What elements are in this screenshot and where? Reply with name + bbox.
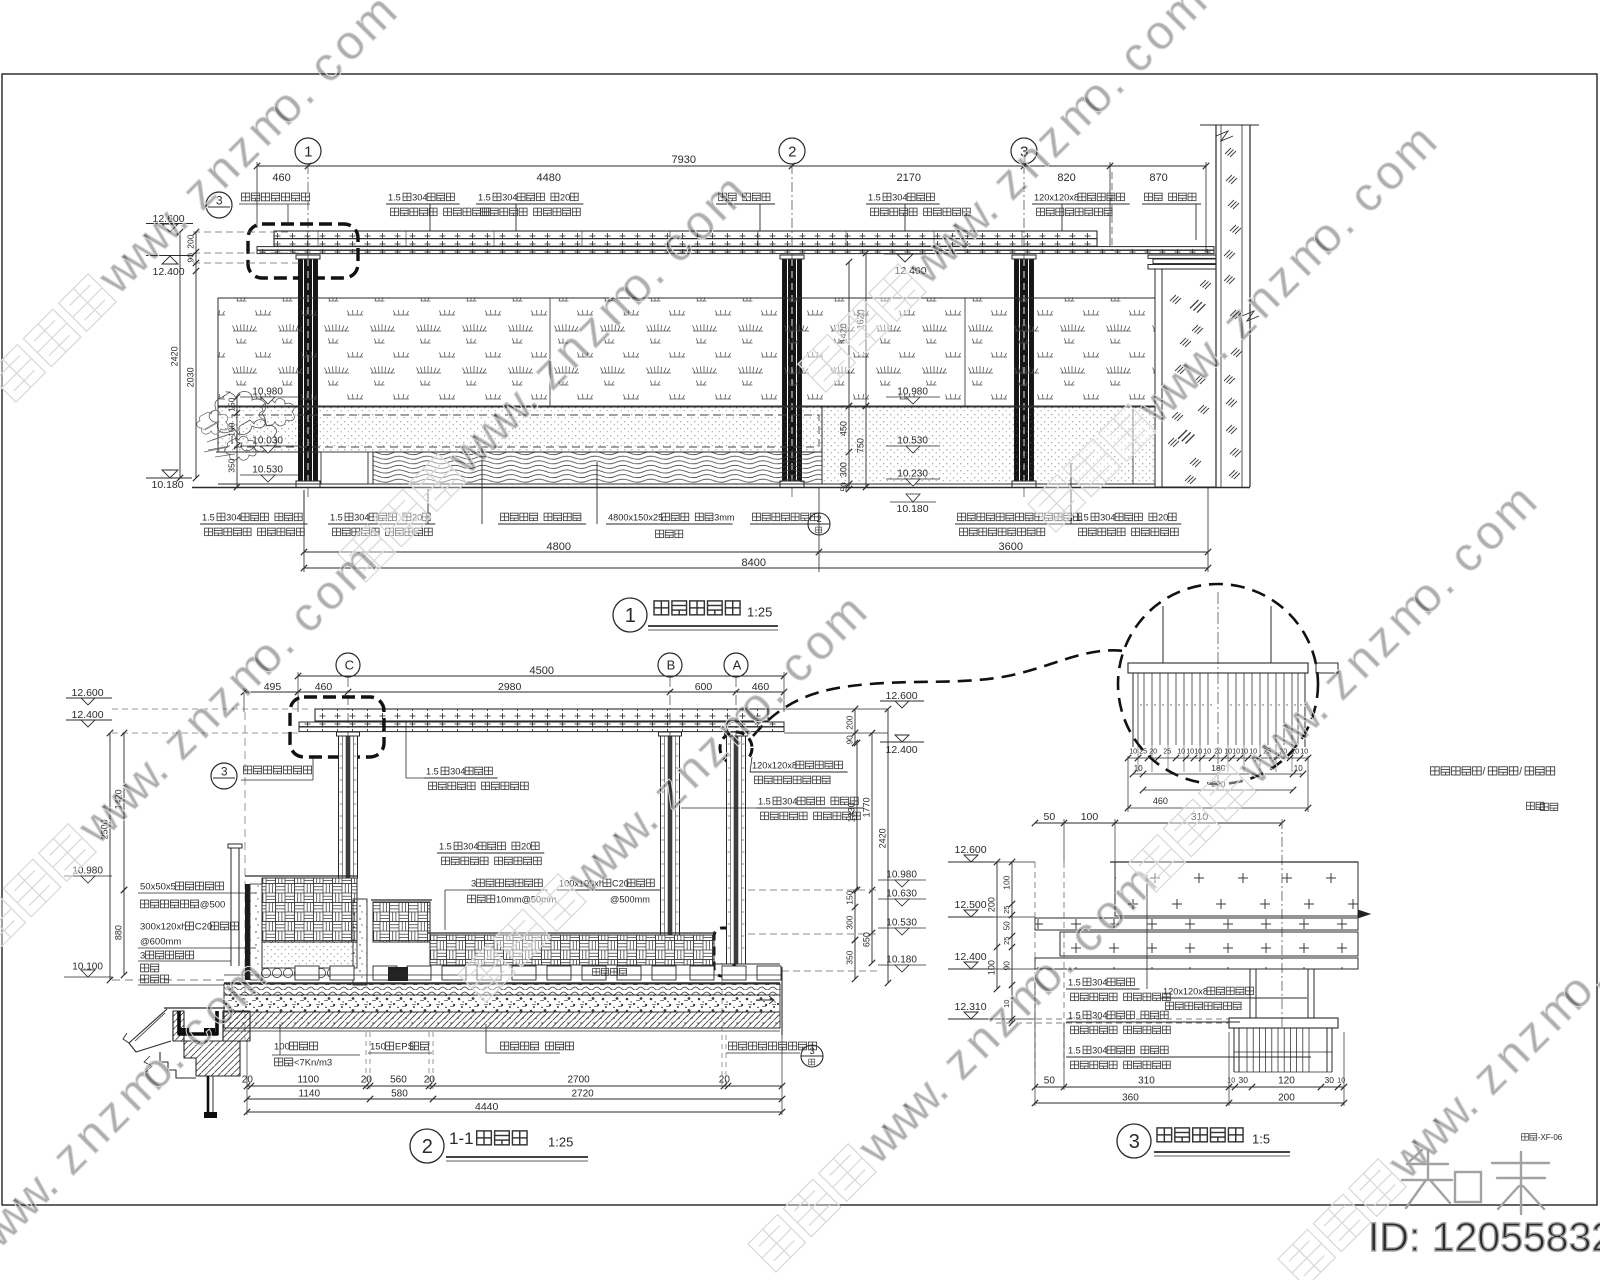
- svg-text:1: 1: [625, 605, 636, 627]
- svg-text:3: 3: [471, 878, 476, 888]
- svg-text:1.5: 1.5: [1068, 1045, 1081, 1055]
- svg-text:2030: 2030: [186, 367, 196, 387]
- svg-text:90: 90: [845, 735, 854, 744]
- svg-text:304: 304: [1092, 977, 1107, 987]
- svg-text:10: 10: [1294, 764, 1303, 773]
- svg-text:100: 100: [987, 960, 997, 975]
- svg-text:1.5: 1.5: [1076, 512, 1089, 522]
- svg-text:2980: 2980: [498, 681, 522, 693]
- svg-text:870: 870: [1149, 172, 1167, 184]
- svg-text:10: 10: [1227, 1078, 1235, 1085]
- svg-text:2720: 2720: [572, 1089, 595, 1100]
- svg-text:880: 880: [114, 925, 124, 940]
- svg-text:8400: 8400: [742, 557, 766, 569]
- svg-text:10.230: 10.230: [897, 469, 928, 480]
- svg-text:10.630: 10.630: [886, 889, 917, 900]
- svg-text:12.400: 12.400: [886, 744, 918, 756]
- svg-text:304: 304: [1092, 1010, 1107, 1020]
- svg-text:820: 820: [1057, 172, 1075, 184]
- svg-text:@500: @500: [200, 899, 226, 910]
- svg-text:20: 20: [521, 841, 531, 851]
- svg-text:90: 90: [186, 253, 196, 263]
- svg-text:10.980: 10.980: [886, 870, 917, 881]
- svg-text:1.5: 1.5: [1068, 1010, 1081, 1020]
- svg-text:10: 10: [1134, 764, 1143, 773]
- svg-text:120x120x8: 120x120x8: [1163, 986, 1208, 996]
- svg-text:12.500: 12.500: [955, 899, 987, 911]
- svg-text:304: 304: [1092, 1045, 1107, 1055]
- svg-text:3: 3: [221, 764, 228, 778]
- svg-text:3: 3: [140, 950, 145, 961]
- svg-text:10: 10: [1203, 747, 1211, 756]
- svg-text:A: A: [733, 658, 742, 673]
- svg-text:25: 25: [1002, 937, 1011, 945]
- svg-text:12.400: 12.400: [955, 951, 987, 963]
- svg-text:50: 50: [839, 482, 848, 491]
- svg-text:4800: 4800: [547, 541, 571, 553]
- svg-text:10.180: 10.180: [152, 479, 184, 491]
- svg-text:460: 460: [272, 172, 290, 184]
- svg-text:30: 30: [1325, 1075, 1335, 1085]
- svg-text:150: 150: [845, 890, 855, 904]
- svg-text:3: 3: [810, 1046, 815, 1056]
- svg-text:10: 10: [1177, 747, 1185, 756]
- svg-text:560: 560: [390, 1075, 407, 1086]
- svg-text:304: 304: [892, 192, 907, 202]
- svg-text:20: 20: [1158, 512, 1168, 522]
- svg-text:30: 30: [1239, 1075, 1249, 1085]
- svg-text:4440: 4440: [475, 1101, 499, 1113]
- svg-text:4800x150x25: 4800x150x25: [608, 512, 663, 522]
- svg-text:580: 580: [391, 1089, 408, 1100]
- svg-text:20: 20: [1149, 747, 1157, 756]
- svg-text:304: 304: [226, 512, 241, 522]
- svg-text:100: 100: [1002, 875, 1012, 889]
- svg-text:1.5: 1.5: [202, 512, 215, 522]
- svg-text:4500: 4500: [530, 665, 554, 677]
- svg-text:1.5: 1.5: [330, 512, 343, 522]
- svg-text:50x50x5: 50x50x5: [140, 881, 176, 892]
- svg-text:EPS: EPS: [395, 1041, 414, 1052]
- svg-text:12.600: 12.600: [955, 844, 987, 856]
- svg-text:1-1: 1-1: [449, 1129, 474, 1148]
- svg-text:304: 304: [354, 512, 369, 522]
- svg-text:50: 50: [1044, 1076, 1056, 1087]
- svg-text:304: 304: [412, 192, 427, 202]
- svg-text:1330: 1330: [847, 802, 857, 822]
- svg-text:1: 1: [304, 143, 312, 160]
- svg-text:12.400: 12.400: [72, 709, 104, 721]
- svg-text:10: 10: [1186, 747, 1194, 756]
- svg-text:300: 300: [839, 462, 849, 477]
- svg-text:2700: 2700: [568, 1075, 591, 1086]
- svg-text:10.980: 10.980: [252, 387, 283, 398]
- svg-text:20: 20: [361, 1075, 373, 1086]
- svg-text:/: /: [1519, 767, 1522, 778]
- svg-text:1140: 1140: [299, 1089, 321, 1100]
- svg-text:1.5: 1.5: [758, 796, 771, 806]
- svg-text:1.5: 1.5: [868, 192, 881, 202]
- svg-text:1:25: 1:25: [747, 605, 772, 620]
- svg-text:20: 20: [560, 192, 570, 202]
- svg-text:1.5: 1.5: [426, 766, 439, 776]
- svg-text:@500mm: @500mm: [610, 894, 650, 904]
- svg-text:7930: 7930: [672, 154, 696, 166]
- svg-text:4480: 4480: [537, 172, 561, 184]
- svg-text:460: 460: [315, 681, 333, 693]
- svg-text:304: 304: [450, 766, 465, 776]
- svg-text:360: 360: [1122, 1093, 1139, 1104]
- svg-text:3mm: 3mm: [714, 512, 735, 522]
- svg-text:200: 200: [845, 715, 855, 729]
- svg-text:100: 100: [274, 1041, 290, 1052]
- svg-text:<7Kn/m3: <7Kn/m3: [294, 1057, 332, 1068]
- svg-text:10: 10: [1129, 747, 1137, 756]
- svg-text:25: 25: [1002, 906, 1011, 914]
- svg-text:50: 50: [1002, 921, 1011, 930]
- svg-text:2420: 2420: [170, 346, 180, 366]
- svg-text:120: 120: [1278, 1076, 1295, 1087]
- svg-text:2170: 2170: [897, 172, 921, 184]
- svg-text:304: 304: [782, 796, 797, 806]
- svg-text:/: /: [1483, 767, 1486, 778]
- svg-text:50: 50: [1044, 811, 1056, 823]
- svg-text:25: 25: [1139, 747, 1147, 756]
- svg-text:1:25: 1:25: [548, 1135, 573, 1150]
- svg-text:750: 750: [856, 438, 866, 453]
- svg-text:150: 150: [370, 1041, 386, 1052]
- svg-text:10.980: 10.980: [897, 387, 928, 398]
- svg-text:@600mm: @600mm: [140, 936, 181, 947]
- svg-text:1:5: 1:5: [1252, 1132, 1270, 1147]
- svg-text:ID: 1205583242: ID: 1205583242: [1368, 1214, 1600, 1260]
- svg-text:120x120x8: 120x120x8: [752, 760, 797, 770]
- svg-text:304: 304: [463, 841, 478, 851]
- svg-text:1770: 1770: [862, 797, 872, 817]
- svg-text:300: 300: [845, 915, 855, 929]
- svg-text:200: 200: [987, 897, 997, 912]
- svg-text:-XF-06: -XF-06: [1538, 1133, 1563, 1142]
- svg-text:20: 20: [424, 1075, 436, 1086]
- svg-text:1.5: 1.5: [439, 841, 452, 851]
- svg-text:12.600: 12.600: [72, 687, 104, 699]
- svg-text:C20: C20: [195, 921, 212, 932]
- svg-text:150: 150: [227, 397, 237, 411]
- svg-text:10.180: 10.180: [897, 503, 929, 515]
- svg-text:100: 100: [1081, 811, 1099, 823]
- svg-text:25: 25: [1163, 747, 1171, 756]
- svg-text:200: 200: [1278, 1093, 1295, 1104]
- svg-text:10.030: 10.030: [252, 436, 283, 447]
- svg-text:20: 20: [1214, 747, 1222, 756]
- svg-text:12.600: 12.600: [886, 690, 918, 702]
- svg-text:2: 2: [788, 143, 796, 160]
- svg-text:10.530: 10.530: [897, 436, 928, 447]
- svg-text:20: 20: [242, 1075, 254, 1086]
- svg-text:C: C: [345, 658, 354, 673]
- svg-text:20: 20: [719, 1075, 731, 1086]
- svg-text:304: 304: [1100, 512, 1115, 522]
- svg-text:10: 10: [1194, 747, 1202, 756]
- svg-text:350: 350: [227, 458, 237, 472]
- svg-text:304: 304: [502, 192, 517, 202]
- svg-text:1.5: 1.5: [478, 192, 491, 202]
- svg-text:450: 450: [839, 421, 849, 436]
- svg-text:600: 600: [695, 681, 713, 693]
- svg-text:460: 460: [1153, 796, 1168, 806]
- svg-text:1100: 1100: [298, 1075, 320, 1086]
- svg-text:310: 310: [1138, 1076, 1155, 1087]
- svg-text:3: 3: [1129, 1131, 1140, 1153]
- svg-text:3600: 3600: [999, 541, 1023, 553]
- svg-text:2: 2: [422, 1136, 433, 1158]
- svg-text:90: 90: [1002, 961, 1012, 971]
- svg-text:2420: 2420: [878, 828, 888, 848]
- svg-text:100: 100: [227, 422, 237, 436]
- svg-text:10.530: 10.530: [886, 918, 917, 929]
- svg-text:300x120xh: 300x120xh: [140, 921, 186, 932]
- svg-text:B: B: [667, 658, 676, 673]
- svg-text:10.530: 10.530: [252, 465, 283, 476]
- svg-text:120x120x8: 120x120x8: [1034, 192, 1079, 202]
- svg-text:10.180: 10.180: [886, 955, 917, 966]
- svg-text:350: 350: [845, 950, 855, 964]
- svg-text:1.5: 1.5: [388, 192, 401, 202]
